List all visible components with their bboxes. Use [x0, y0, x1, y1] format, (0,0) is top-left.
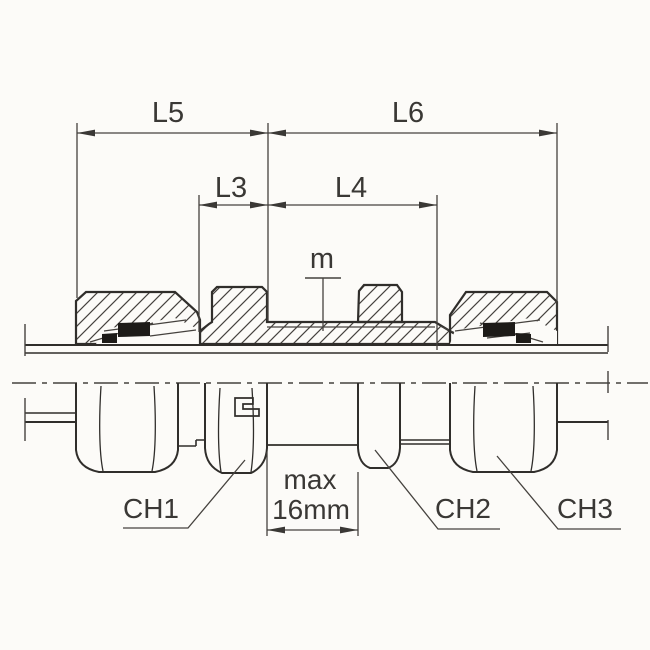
dimension-l6: L6 [268, 97, 557, 136]
ch2-label: CH2 [435, 493, 491, 524]
exterior-outlines [76, 383, 557, 473]
panel-thickness-dimension: max 16mm [267, 452, 358, 536]
dimension-l3: L3 [199, 172, 268, 208]
thread-callout-m: m [305, 243, 341, 331]
dimension-l5: L5 [77, 97, 268, 136]
dim-l4-label: L4 [335, 172, 367, 204]
dim-l5-label: L5 [152, 97, 184, 129]
technical-drawing-page: L5 L6 L3 L4 m max 16mm CH1 [0, 0, 650, 650]
counterhold-symbol [235, 398, 259, 416]
dim-l6-label: L6 [392, 97, 424, 129]
dimension-l4: L4 [268, 172, 437, 208]
wrench-callout-ch1: CH1 [123, 460, 245, 528]
wrench-callout-ch3: CH3 [497, 456, 621, 529]
fitting-cross-section-drawing: L5 L6 L3 L4 m max 16mm CH1 [0, 0, 650, 650]
wrench-callout-ch2: CH2 [375, 450, 500, 529]
body-section [200, 287, 473, 344]
panel-max-label: max [284, 464, 337, 495]
dim-l3-label: L3 [215, 172, 247, 204]
ch1-label: CH1 [123, 493, 179, 524]
locknut-section [358, 285, 402, 322]
panel-value-label: 16mm [272, 494, 350, 525]
thread-label: m [310, 243, 334, 275]
ch3-label: CH3 [557, 493, 613, 524]
